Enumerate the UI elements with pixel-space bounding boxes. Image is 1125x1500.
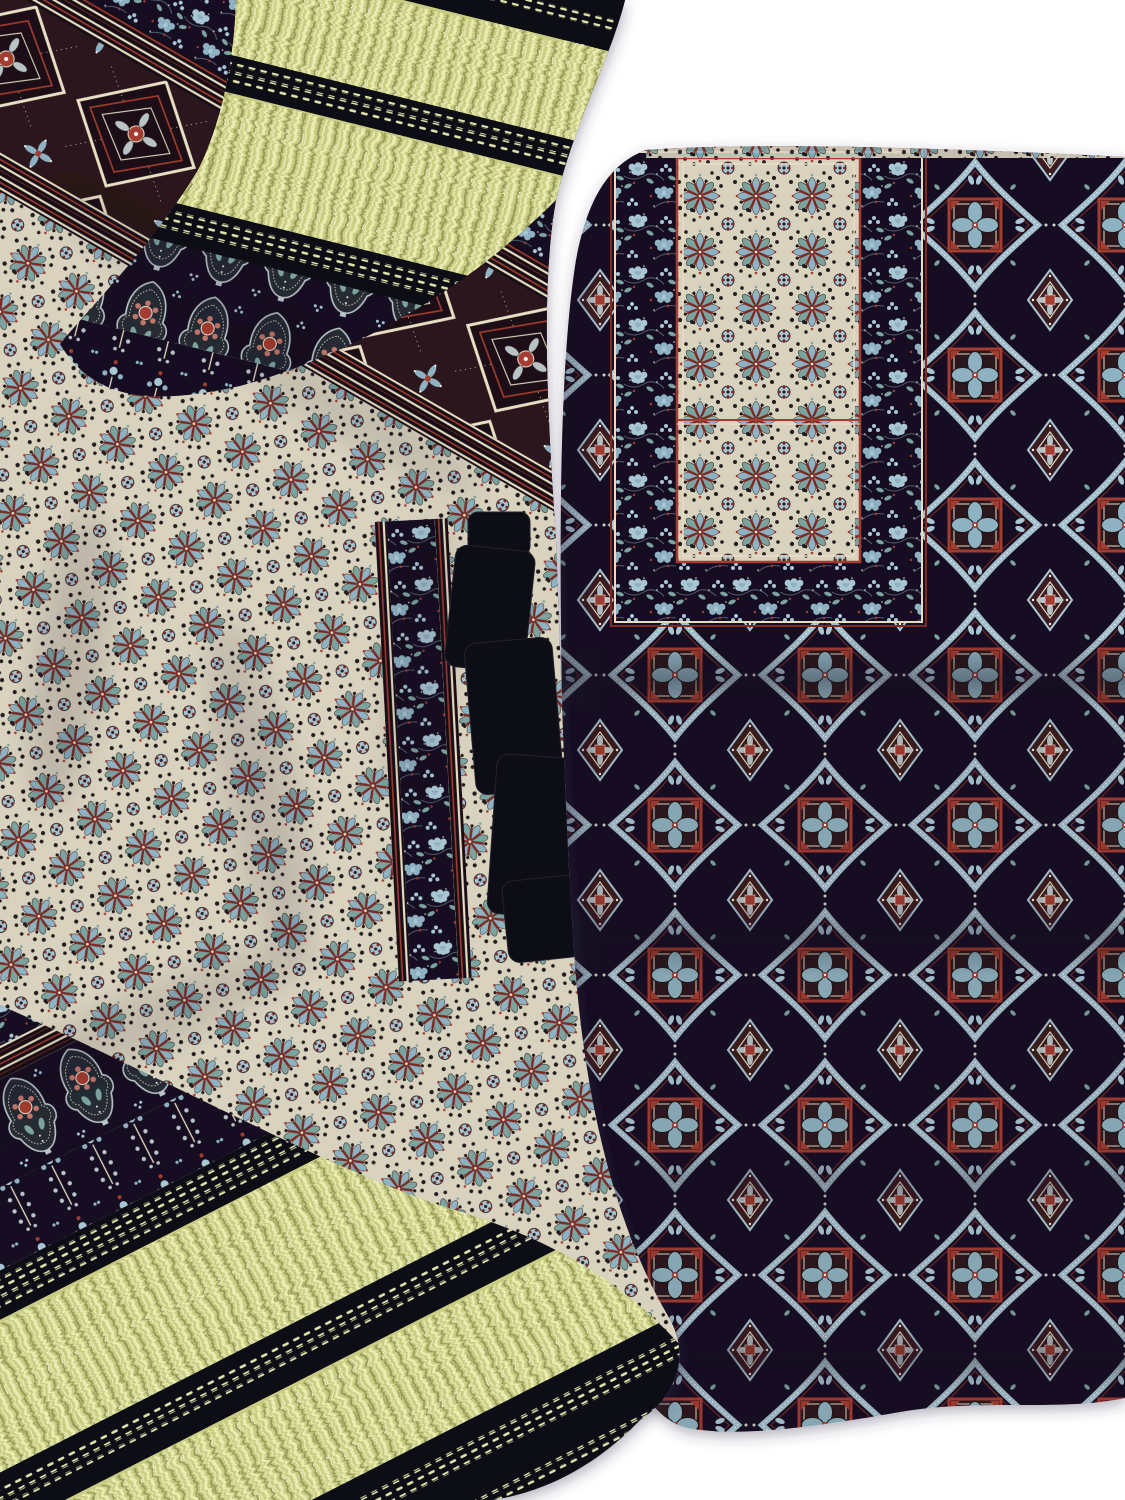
yoke-panel [611,148,926,626]
folded-suit-fabric [550,140,1125,1440]
fabric-photo-canvas [0,0,1125,1500]
cream-mosaic-yoke-panel [677,158,860,562]
product-photo [0,0,1125,1500]
